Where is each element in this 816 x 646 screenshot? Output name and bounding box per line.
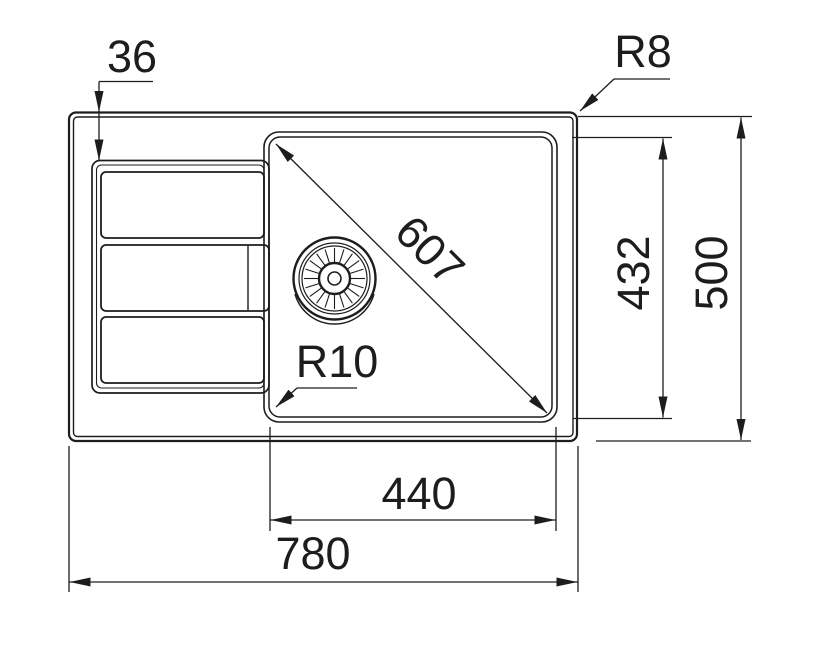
drain-strainer-icon	[294, 238, 376, 325]
dim-r10-label: R10	[296, 336, 379, 387]
strainer-hub-ring	[319, 263, 350, 294]
sink-technical-drawing: 36 R8 607 R10 432 500 440	[0, 0, 816, 646]
drainboard	[92, 161, 269, 394]
dim-36-label: 36	[107, 31, 157, 82]
sink-outline	[69, 113, 577, 442]
dim-bowl-corner-radius: R10	[276, 336, 378, 407]
drainboard-rib-bottom	[101, 317, 264, 383]
dim-overall-depth: 500	[578, 117, 752, 442]
dim-607-line-lower	[411, 278, 547, 413]
dim-607-label: 607	[385, 205, 474, 294]
dim-overall-width: 780	[69, 446, 578, 592]
drainboard-outer-line	[92, 161, 269, 394]
strainer-spokes	[304, 248, 365, 309]
dim-780-label: 780	[275, 528, 350, 579]
dim-outer-corner-radius: R8	[580, 26, 672, 111]
dim-432-label: 432	[608, 235, 659, 310]
dim-bowl-depth: 432	[572, 138, 672, 419]
dim-r8-leader	[580, 79, 614, 111]
drawing-canvas: 36 R8 607 R10 432 500 440	[0, 0, 816, 646]
dim-r8-label: R8	[614, 26, 672, 77]
dim-500-label: 500	[686, 235, 737, 310]
drainboard-rib-middle	[101, 245, 269, 311]
dim-bowl-width: 440	[270, 427, 556, 531]
dim-607-line-upper	[276, 144, 411, 278]
dim-440-label: 440	[381, 468, 456, 519]
strainer-center-hole	[328, 272, 341, 285]
dim-edge-offset: 36	[99, 31, 157, 161]
dim-r10-leader	[276, 388, 297, 407]
drainboard-inner-line	[97, 165, 265, 388]
drainboard-rib-top	[101, 172, 264, 238]
sink-outer-edge	[69, 113, 577, 442]
